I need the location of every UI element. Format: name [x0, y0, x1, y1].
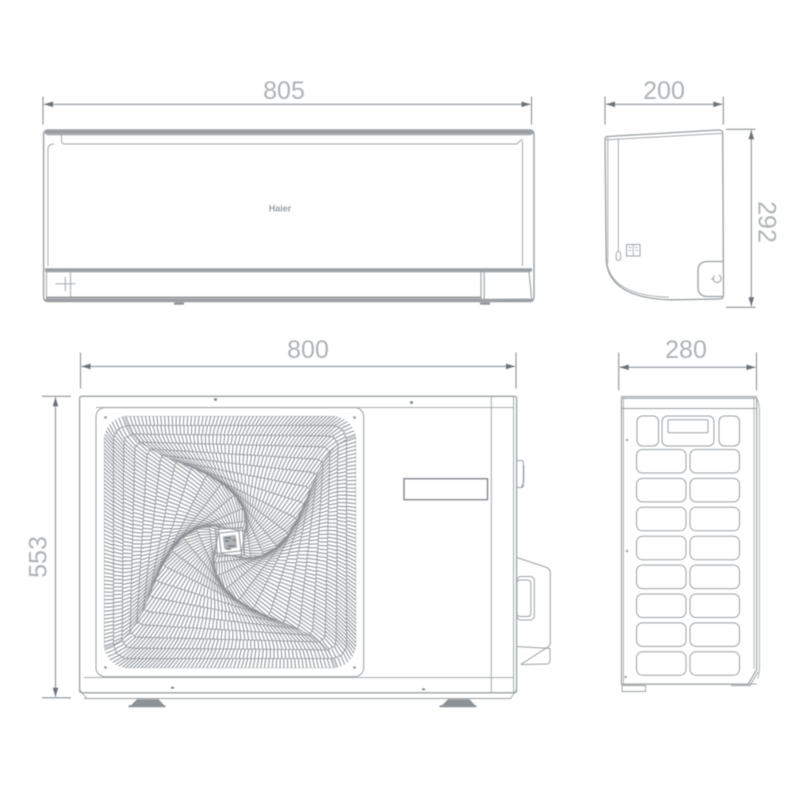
- svg-text:Haier: Haier: [269, 204, 292, 214]
- svg-text:200: 200: [643, 77, 685, 105]
- svg-text:280: 280: [665, 336, 707, 364]
- svg-text:805: 805: [263, 77, 305, 105]
- svg-text:553: 553: [25, 536, 53, 578]
- svg-text:800: 800: [287, 336, 329, 364]
- svg-text:292: 292: [753, 201, 781, 243]
